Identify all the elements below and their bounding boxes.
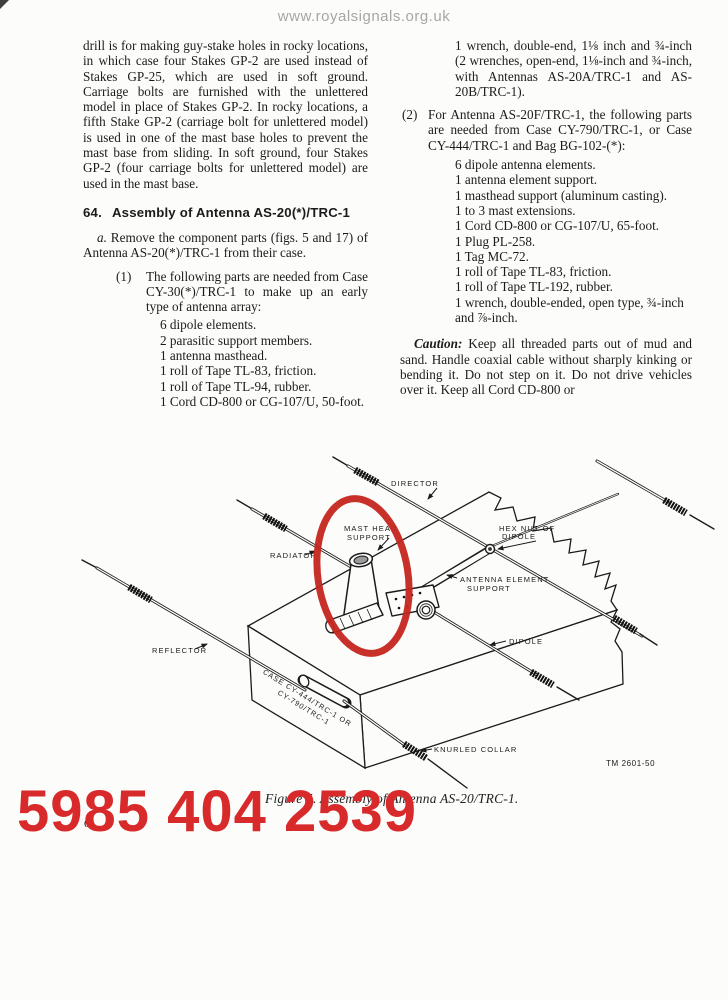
stock-number-overlay: 5985 404 2539 [17,778,417,845]
radiator-rod [237,500,358,571]
scanned-manual-page: www.royalsignals.org.uk drill is for mak… [0,0,728,1000]
director-label: DIRECTOR [391,479,439,488]
tm-number: TM 2601-50 [606,759,655,768]
radiator-label: RADIATOR [270,551,317,560]
knurled-collar-label: KNURLED COLLAR [434,745,517,754]
svg-text:SUPPORT: SUPPORT [347,533,391,542]
dipole-label: DIPOLE [509,637,543,646]
antenna-element-support-label: ANTENNA ELEMENT [460,575,549,584]
svg-text:DIPOLE: DIPOLE [502,532,536,541]
antenna-assembly-figure: CASE CY-444/TRC-1 OR CY-790/TRC-1 [0,0,728,1000]
equipment-case [248,492,623,768]
svg-text:SUPPORT: SUPPORT [467,584,511,593]
